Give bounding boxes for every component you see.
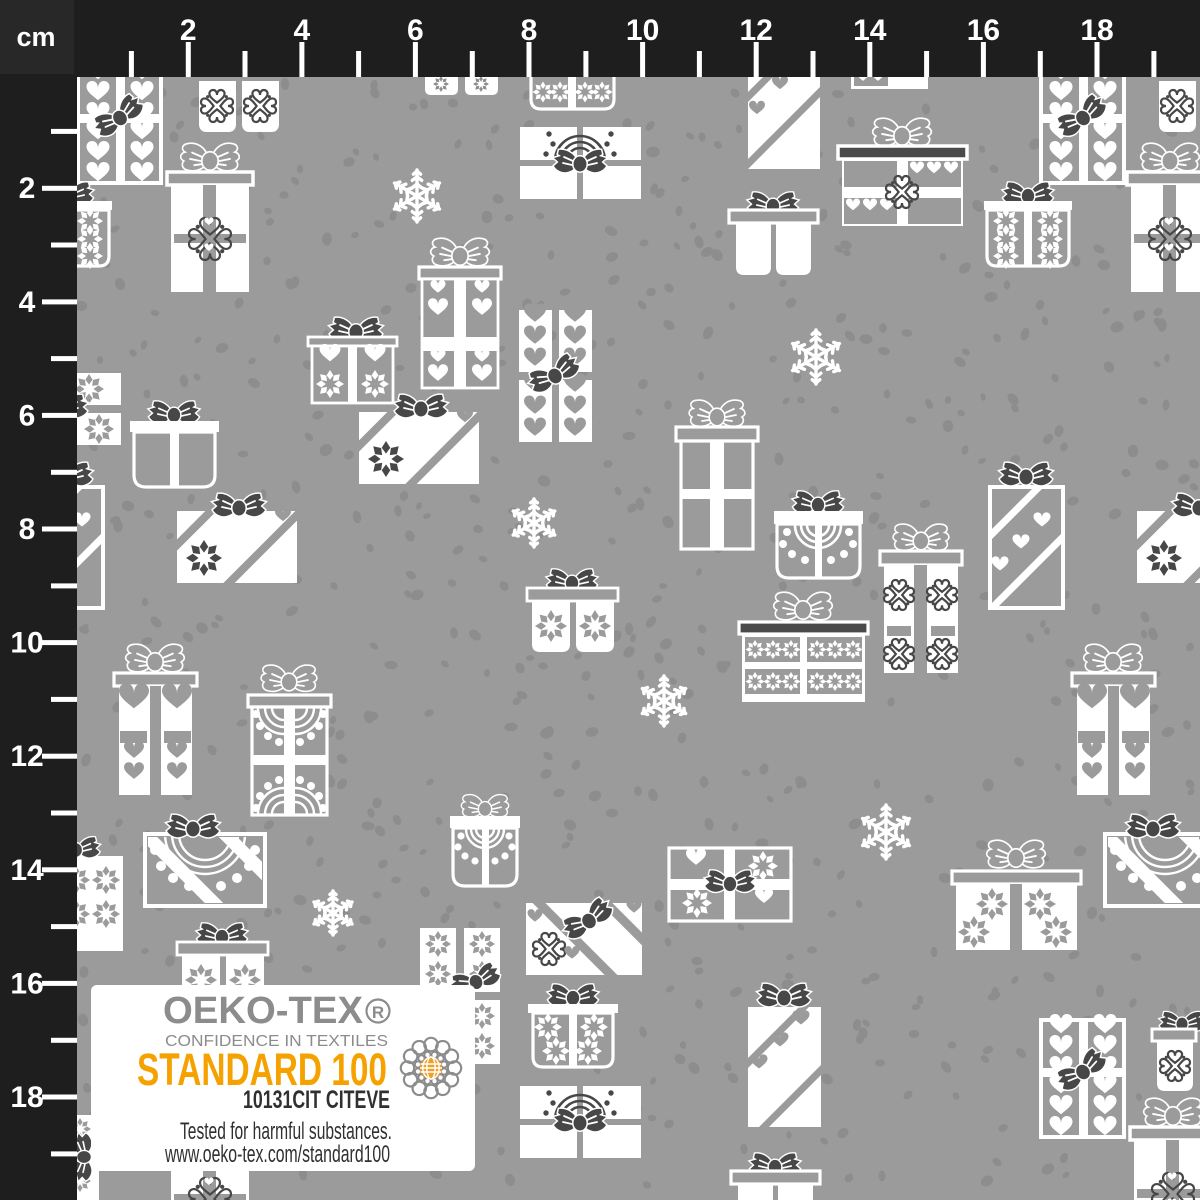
svg-text:18: 18 bbox=[1080, 14, 1113, 47]
svg-text:8: 8 bbox=[19, 513, 36, 546]
svg-text:10: 10 bbox=[10, 627, 43, 660]
svg-text:4: 4 bbox=[19, 286, 36, 319]
svg-text:cm: cm bbox=[16, 22, 55, 52]
svg-text:www.oeko-tex.com/standard100: www.oeko-tex.com/standard100 bbox=[164, 1141, 390, 1168]
svg-text:12: 12 bbox=[10, 740, 43, 773]
svg-text:18: 18 bbox=[10, 1081, 43, 1114]
svg-text:2: 2 bbox=[19, 172, 36, 205]
svg-text:12: 12 bbox=[740, 14, 773, 47]
svg-text:14: 14 bbox=[853, 14, 887, 47]
svg-text:16: 16 bbox=[967, 14, 1000, 47]
svg-text:10: 10 bbox=[626, 14, 659, 47]
svg-text:OEKO-TEX: OEKO-TEX bbox=[163, 990, 364, 1032]
svg-text:8: 8 bbox=[521, 14, 538, 47]
svg-text:14: 14 bbox=[10, 854, 44, 887]
svg-text:2: 2 bbox=[180, 14, 197, 47]
svg-text:16: 16 bbox=[10, 967, 43, 1000]
svg-text:6: 6 bbox=[19, 399, 36, 432]
svg-text:6: 6 bbox=[407, 14, 424, 47]
svg-text:10131CIT CITEVE: 10131CIT CITEVE bbox=[243, 1086, 390, 1114]
svg-text:R: R bbox=[372, 1003, 384, 1022]
svg-text:4: 4 bbox=[294, 14, 311, 47]
